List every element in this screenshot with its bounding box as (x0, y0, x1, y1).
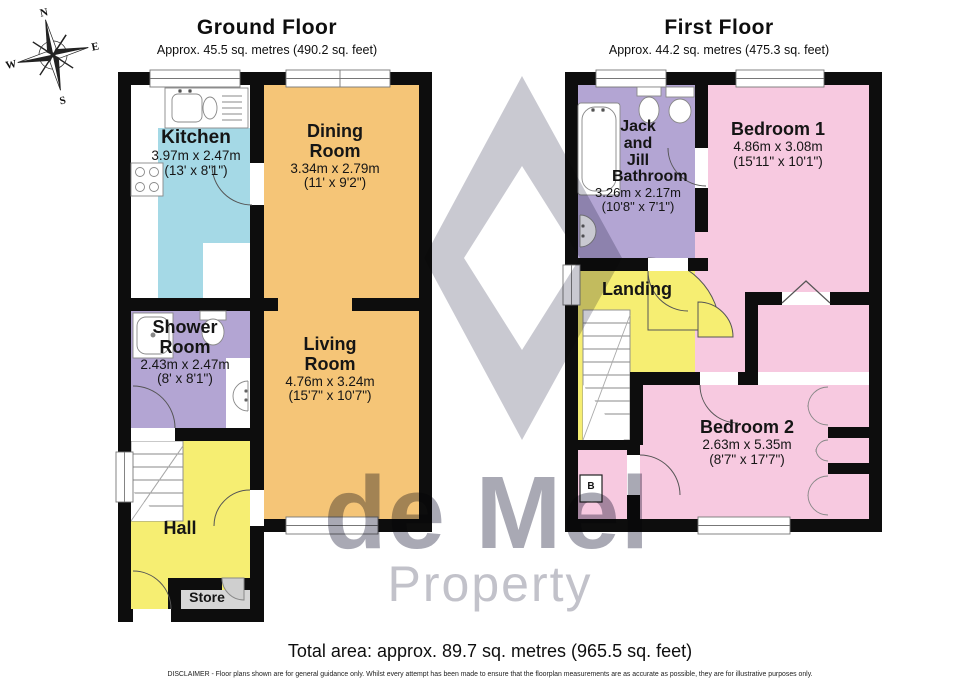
first-floor-title-text: First Floor (609, 16, 829, 40)
stairs-icon (131, 441, 183, 521)
room-label-hall: Hall (163, 519, 196, 539)
window-icon (286, 70, 390, 87)
window-icon (596, 70, 666, 87)
window-icon (150, 70, 240, 87)
room-label-shower: Shower Room 2.43m x 2.47m (8' x 8'1") (140, 318, 229, 387)
stairs-icon (583, 310, 630, 440)
disclaimer-text: DISCLAIMER - Floor plans shown are for g… (167, 671, 812, 678)
room-label-living: Living Room 4.76m x 3.24m (15'7" x 10'7"… (285, 335, 374, 404)
room-label-landing: Landing (602, 280, 672, 300)
window-icon (563, 265, 580, 305)
room-label-kitchen: Kitchen 3.97m x 2.47m (13' x 8'1") (151, 128, 240, 179)
window-icon (698, 517, 790, 534)
compass-south-label: S (59, 94, 67, 107)
window-icon (736, 70, 824, 87)
floorplan-page: N E S W Ground Floor Approx. 45.5 sq. me… (0, 0, 980, 690)
room-label-dining: Dining Room 3.34m x 2.79m (11' x 9'2") (290, 122, 379, 191)
window-icon (116, 452, 133, 502)
compass-east-label: E (90, 40, 100, 53)
first-floor-title: First Floor Approx. 44.2 sq. metres (475… (609, 16, 829, 57)
compass-rose-icon: N E S W (0, 0, 110, 117)
room-label-bathroom: Jack and Jill Bathroom 3.26m x 2.17m (10… (595, 119, 681, 215)
compass-west-label: W (5, 58, 18, 72)
kitchen-nook (203, 243, 250, 298)
room-label-bedroom2: Bedroom 2 2.63m x 5.35m (8'7" x 17'7") (700, 418, 794, 467)
ground-floor-title: Ground Floor Approx. 45.5 sq. metres (49… (157, 16, 377, 57)
room-bedroom2-upper-fill (758, 305, 869, 372)
compass-north-label: N (39, 6, 49, 19)
ground-floor-subtitle: Approx. 45.5 sq. metres (490.2 sq. feet) (157, 43, 377, 57)
ground-floor-title-text: Ground Floor (157, 16, 377, 40)
room-label-store: Store (189, 590, 225, 605)
window-icon (286, 517, 378, 534)
first-floor-subtitle: Approx. 44.2 sq. metres (475.3 sq. feet) (609, 43, 829, 57)
boiler-label: B (587, 481, 594, 492)
room-label-bedroom1: Bedroom 1 4.86m x 3.08m (15'11" x 10'1") (731, 120, 825, 169)
kitchen-sink-icon (165, 88, 248, 128)
total-area-text: Total area: approx. 89.7 sq. metres (965… (288, 641, 692, 662)
